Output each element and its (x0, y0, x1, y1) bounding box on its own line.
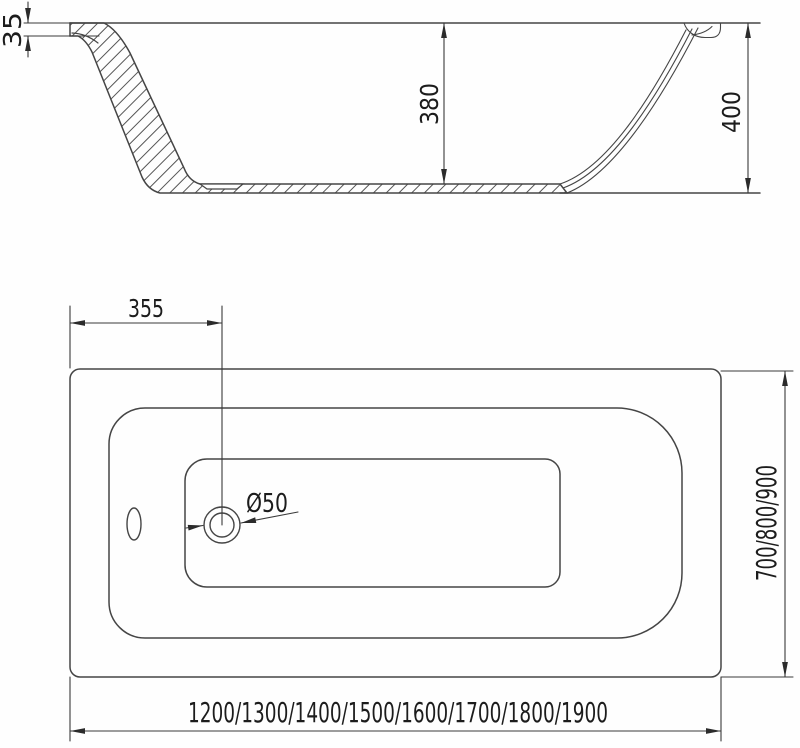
right-wall-line-outer (560, 30, 686, 184)
dim-total-height-label: 400 (717, 91, 746, 133)
right-wall-line-middle (563, 29, 692, 188)
dim-drain-offset-label: 355 (128, 294, 164, 323)
right-rim-hook-profile (684, 23, 721, 38)
plan-dimensions (70, 306, 793, 741)
drawing-canvas: 35 380 400 (0, 0, 800, 748)
dim-length-options-label: 1200/1300/1400/1500/1600/1700/1800/1900 (188, 696, 608, 729)
drain-diameter-label: Ø50 (246, 489, 288, 519)
right-wall-line-inner (567, 28, 698, 193)
dim-rim-height-label: 35 (0, 12, 27, 48)
tub-inner-rim-edge (109, 408, 682, 638)
drain-recess-detail (200, 184, 243, 189)
drain-dia-leader-left (186, 526, 203, 529)
right-wall-elevation (560, 23, 721, 193)
dim-inner-depth-label: 380 (415, 83, 444, 125)
tub-wall-and-floor-section (70, 23, 567, 193)
bathtub-technical-drawing: 35 380 400 (0, 0, 800, 748)
overflow-hole (127, 508, 141, 540)
bathtub-section-view: 35 380 400 (0, 2, 760, 193)
dim-width-options-label: 700/800/900 (750, 465, 783, 581)
bathtub-plan-view: 355 Ø50 700/800/900 1200/1300/1400/1500/… (70, 294, 793, 741)
tub-outer-edge (70, 369, 721, 677)
